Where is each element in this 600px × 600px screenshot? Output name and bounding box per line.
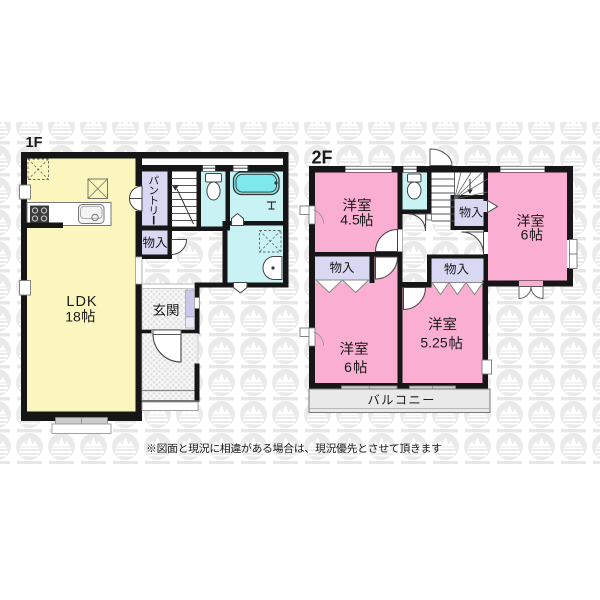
- svg-text:18: 18: [65, 309, 81, 325]
- svg-text:6: 6: [344, 359, 352, 375]
- svg-text:6: 6: [521, 227, 529, 243]
- svg-text:2F: 2F: [312, 148, 333, 168]
- svg-text:5.25: 5.25: [420, 335, 447, 351]
- svg-text:4.5: 4.5: [340, 212, 360, 228]
- svg-text:1F: 1F: [26, 135, 43, 151]
